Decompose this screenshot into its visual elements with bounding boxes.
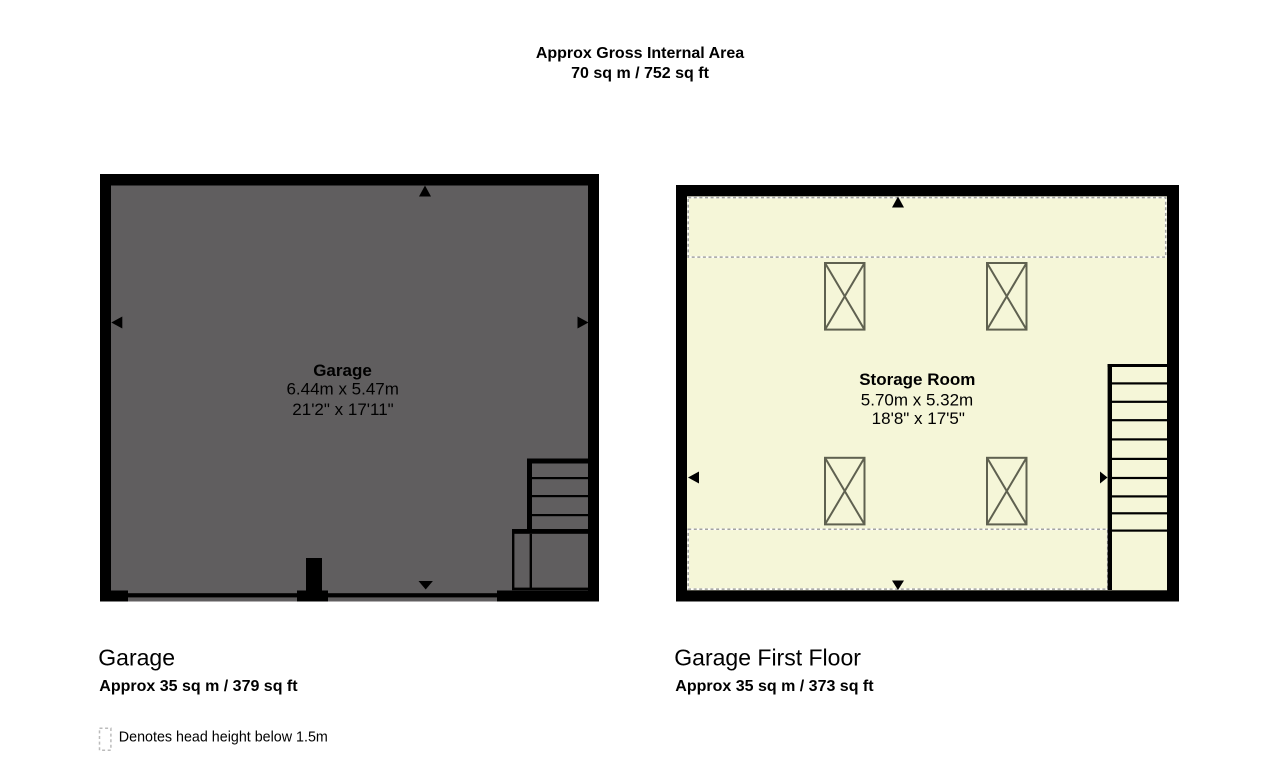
svg-text:Garage First Floor: Garage First Floor [674,644,861,670]
svg-text:Storage Room: Storage Room [859,370,975,389]
svg-text:70 sq m / 752 sq ft: 70 sq m / 752 sq ft [571,65,710,82]
svg-text:6.44m x 5.47m: 6.44m x 5.47m [286,380,398,399]
svg-text:Approx 35 sq m / 379 sq ft: Approx 35 sq m / 379 sq ft [99,678,298,695]
svg-text:18'8" x 17'5": 18'8" x 17'5" [872,409,965,428]
svg-text:Approx 35 sq m / 373 sq ft: Approx 35 sq m / 373 sq ft [675,678,874,695]
svg-text:5.70m x 5.32m: 5.70m x 5.32m [861,391,973,410]
svg-text:Approx Gross Internal Area: Approx Gross Internal Area [536,45,744,62]
svg-text:Denotes head height below 1.5m: Denotes head height below 1.5m [119,730,328,746]
svg-text:21'2" x 17'11": 21'2" x 17'11" [292,400,393,419]
svg-text:Garage: Garage [98,644,175,670]
svg-text:Garage: Garage [313,361,372,380]
